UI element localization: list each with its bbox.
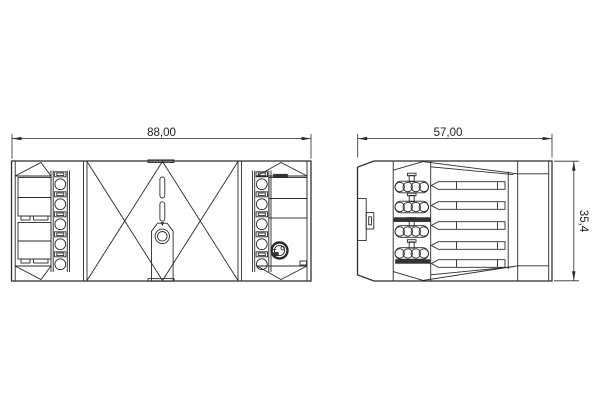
terminal-clips-right bbox=[253, 171, 272, 273]
rotary-selector bbox=[272, 243, 288, 259]
lid-slope-top bbox=[393, 162, 549, 175]
technical-drawing: 88,00 57,00 35,4 bbox=[0, 0, 600, 400]
front-view bbox=[12, 160, 312, 281]
side-height-label: 35,4 bbox=[577, 210, 589, 233]
wire-channels bbox=[431, 182, 505, 268]
terminal-clip-rows bbox=[394, 173, 431, 263]
clip-ledge-upper bbox=[394, 218, 431, 222]
side-width-label: 57,00 bbox=[434, 127, 463, 139]
left-wire-entry-blocks bbox=[18, 178, 51, 264]
lid-slope-bottom bbox=[393, 266, 549, 281]
slide-slots bbox=[160, 177, 165, 226]
mounting-tab bbox=[152, 223, 174, 280]
clip-ledge-lower bbox=[396, 260, 431, 264]
dimension-side-width: 57,00 bbox=[358, 127, 552, 158]
din-clip-profile bbox=[358, 199, 374, 241]
drawing-sheet: 88,00 57,00 35,4 bbox=[0, 0, 600, 400]
front-width-label: 88,00 bbox=[147, 127, 176, 139]
dimension-front-width: 88,00 bbox=[12, 127, 311, 159]
dimension-side-height: 35,4 bbox=[554, 161, 589, 281]
side-outline bbox=[358, 161, 553, 281]
terminal-clips-left bbox=[51, 171, 70, 273]
side-view bbox=[358, 161, 553, 281]
